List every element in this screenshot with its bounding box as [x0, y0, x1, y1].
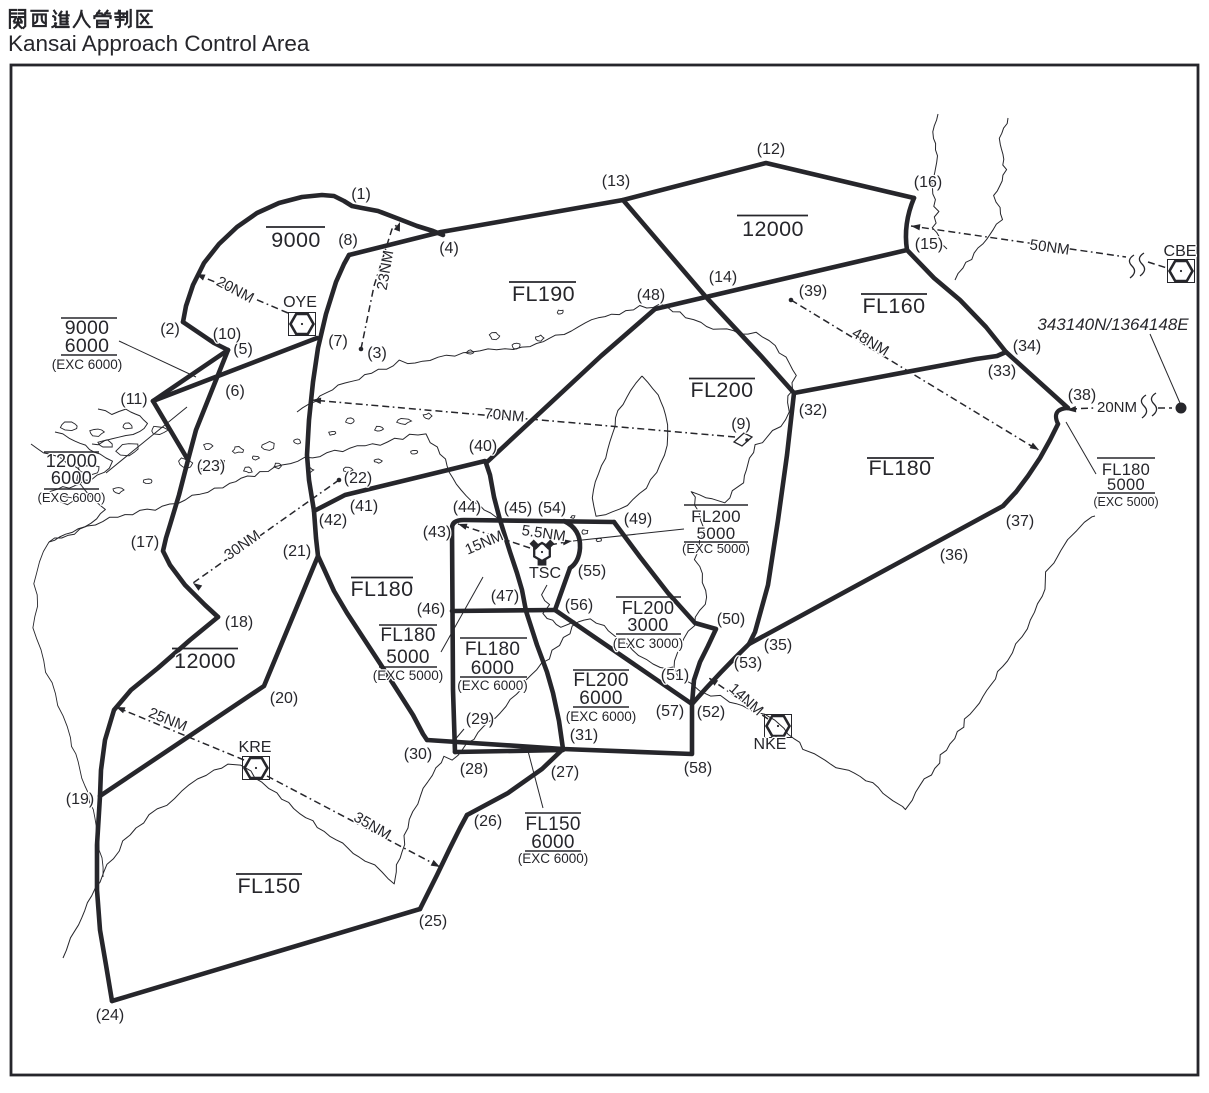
svg-text:6000: 6000 — [471, 658, 514, 679]
svg-text:(50): (50) — [717, 611, 745, 628]
svg-text:FL160: FL160 — [863, 294, 926, 318]
svg-text:(EXC 6000): (EXC 6000) — [457, 678, 528, 693]
svg-text:(44): (44) — [453, 499, 481, 516]
svg-text:(22): (22) — [344, 470, 372, 487]
svg-text:(52): (52) — [697, 704, 725, 721]
svg-text:(34): (34) — [1013, 338, 1041, 355]
svg-text:(51): (51) — [661, 667, 689, 684]
svg-text:(19): (19) — [66, 791, 94, 808]
svg-text:(3): (3) — [367, 345, 387, 362]
svg-text:5000: 5000 — [386, 647, 429, 668]
svg-text:KRE: KRE — [239, 739, 272, 756]
svg-text:(39): (39) — [799, 283, 827, 300]
svg-text:TSC: TSC — [529, 565, 561, 582]
svg-text:(EXC 5000): (EXC 5000) — [373, 668, 444, 683]
svg-text:(33): (33) — [988, 363, 1016, 380]
svg-text:Kansai Approach Control Area: Kansai Approach Control Area — [8, 31, 310, 56]
svg-text:(31): (31) — [570, 727, 598, 744]
svg-text:OYE: OYE — [283, 294, 317, 311]
svg-text:(EXC 6000): (EXC 6000) — [52, 357, 123, 372]
svg-text:(EXC 6000): (EXC 6000) — [518, 851, 589, 866]
svg-text:(56): (56) — [565, 597, 593, 614]
svg-text:(EXC 5000): (EXC 5000) — [1093, 495, 1158, 509]
svg-text:(54): (54) — [538, 500, 566, 517]
svg-text:(18): (18) — [225, 614, 253, 631]
svg-text:(27): (27) — [551, 764, 579, 781]
svg-text:3000: 3000 — [627, 615, 668, 635]
svg-text:(30): (30) — [404, 746, 432, 763]
svg-text:(38): (38) — [1068, 387, 1096, 404]
svg-text:(49): (49) — [624, 511, 652, 528]
svg-text:(7): (7) — [328, 333, 348, 350]
svg-text:(17): (17) — [131, 534, 159, 551]
svg-text:FL190: FL190 — [512, 282, 575, 306]
svg-text:(2): (2) — [160, 321, 180, 338]
svg-text:343140N/1364148E: 343140N/1364148E — [1037, 315, 1189, 334]
svg-text:(12): (12) — [757, 141, 785, 158]
svg-text:70NM: 70NM — [484, 405, 525, 425]
svg-text:(5): (5) — [233, 341, 253, 358]
svg-text:(43): (43) — [423, 524, 451, 541]
svg-text:(41): (41) — [350, 498, 378, 515]
svg-text:(25): (25) — [419, 913, 447, 930]
svg-text:6000: 6000 — [65, 335, 110, 357]
svg-text:(46): (46) — [417, 601, 445, 618]
svg-text:6000: 6000 — [51, 468, 92, 488]
svg-text:(14): (14) — [709, 269, 737, 286]
svg-text:(29): (29) — [466, 711, 494, 728]
svg-text:5000: 5000 — [1107, 476, 1145, 494]
svg-text:CBE: CBE — [1164, 243, 1197, 260]
svg-text:(28): (28) — [460, 761, 488, 778]
svg-text:12000: 12000 — [174, 649, 236, 673]
svg-text:NKE: NKE — [754, 736, 787, 753]
svg-text:(58): (58) — [684, 760, 712, 777]
svg-text:(24): (24) — [96, 1007, 124, 1024]
svg-text:FL180: FL180 — [869, 456, 932, 480]
svg-text:(57): (57) — [656, 703, 684, 720]
svg-text:(53): (53) — [734, 655, 762, 672]
svg-text:(20): (20) — [270, 690, 298, 707]
svg-text:(37): (37) — [1006, 513, 1034, 530]
svg-text:(45): (45) — [504, 500, 532, 517]
svg-text:20NM: 20NM — [1097, 399, 1137, 416]
svg-text:FL180: FL180 — [465, 639, 520, 660]
svg-text:(42): (42) — [319, 512, 347, 529]
svg-text:12000: 12000 — [742, 217, 804, 241]
svg-text:(6): (6) — [225, 383, 245, 400]
svg-text:(16): (16) — [914, 174, 942, 191]
svg-text:(10): (10) — [213, 326, 241, 343]
svg-text:(48): (48) — [637, 287, 665, 304]
svg-text:9000: 9000 — [271, 228, 320, 252]
svg-text:(9): (9) — [731, 416, 751, 433]
svg-text:6000: 6000 — [531, 832, 574, 853]
svg-text:(26): (26) — [474, 813, 502, 830]
svg-text:(40): (40) — [469, 438, 497, 455]
svg-text:FL180: FL180 — [380, 625, 435, 646]
svg-text:(1): (1) — [351, 186, 371, 203]
svg-text:(21): (21) — [283, 543, 311, 560]
svg-text:(36): (36) — [940, 547, 968, 564]
svg-text:(EXC 3000): (EXC 3000) — [613, 636, 684, 651]
svg-text:(8): (8) — [338, 232, 358, 249]
svg-text:FL150: FL150 — [238, 874, 301, 898]
svg-text:(47): (47) — [491, 588, 519, 605]
svg-text:(55): (55) — [578, 563, 606, 580]
svg-text:(4): (4) — [439, 240, 459, 257]
svg-text:(13): (13) — [602, 173, 630, 190]
svg-text:(EXC 5000): (EXC 5000) — [682, 541, 750, 556]
svg-text:(11): (11) — [120, 391, 147, 408]
svg-text:6000: 6000 — [579, 688, 622, 709]
svg-text:(EXC 6000): (EXC 6000) — [566, 709, 637, 724]
svg-text:(23): (23) — [197, 458, 225, 475]
svg-text:FL180: FL180 — [351, 577, 414, 601]
svg-text:FL200: FL200 — [691, 378, 754, 402]
svg-text:(15): (15) — [915, 236, 943, 253]
svg-text:(35): (35) — [764, 637, 792, 654]
svg-text:(EXC 6000): (EXC 6000) — [38, 490, 106, 505]
svg-text:(32): (32) — [799, 402, 827, 419]
